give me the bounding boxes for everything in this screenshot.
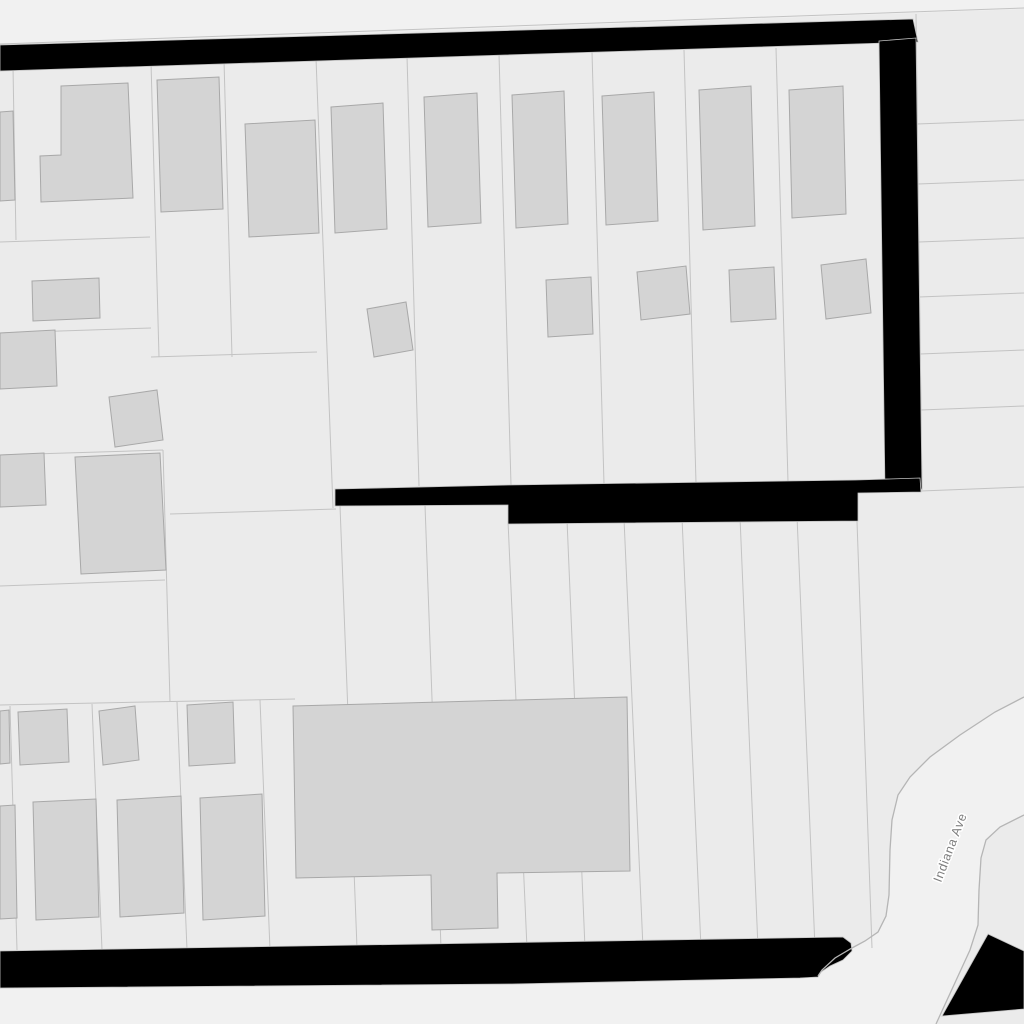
building <box>18 709 69 765</box>
blocked-band-vertical <box>879 38 922 491</box>
building <box>424 93 481 227</box>
building <box>699 86 755 230</box>
building <box>0 111 15 201</box>
map-canvas[interactable]: Indiana Ave <box>0 0 1024 1024</box>
building <box>789 86 846 218</box>
road-labels: Indiana Ave <box>931 811 970 884</box>
building <box>157 77 223 212</box>
map-viewport: Indiana Ave <box>0 0 1024 1024</box>
building <box>117 796 184 917</box>
building <box>75 453 166 574</box>
building <box>0 805 17 919</box>
building <box>512 91 568 228</box>
building <box>602 92 658 225</box>
building <box>32 278 100 321</box>
building <box>821 259 871 319</box>
blocked-wedge-southeast <box>942 934 1024 1016</box>
building <box>0 330 57 389</box>
building <box>729 267 776 322</box>
building <box>187 702 235 766</box>
building <box>367 302 413 357</box>
street-name-label: Indiana Ave <box>931 811 970 884</box>
building <box>637 266 690 320</box>
building <box>245 120 319 237</box>
building <box>109 390 163 447</box>
building <box>546 277 593 337</box>
building <box>0 453 46 507</box>
building <box>0 710 10 764</box>
building <box>99 706 139 765</box>
building <box>200 794 265 920</box>
building <box>33 799 99 920</box>
building <box>331 103 387 233</box>
